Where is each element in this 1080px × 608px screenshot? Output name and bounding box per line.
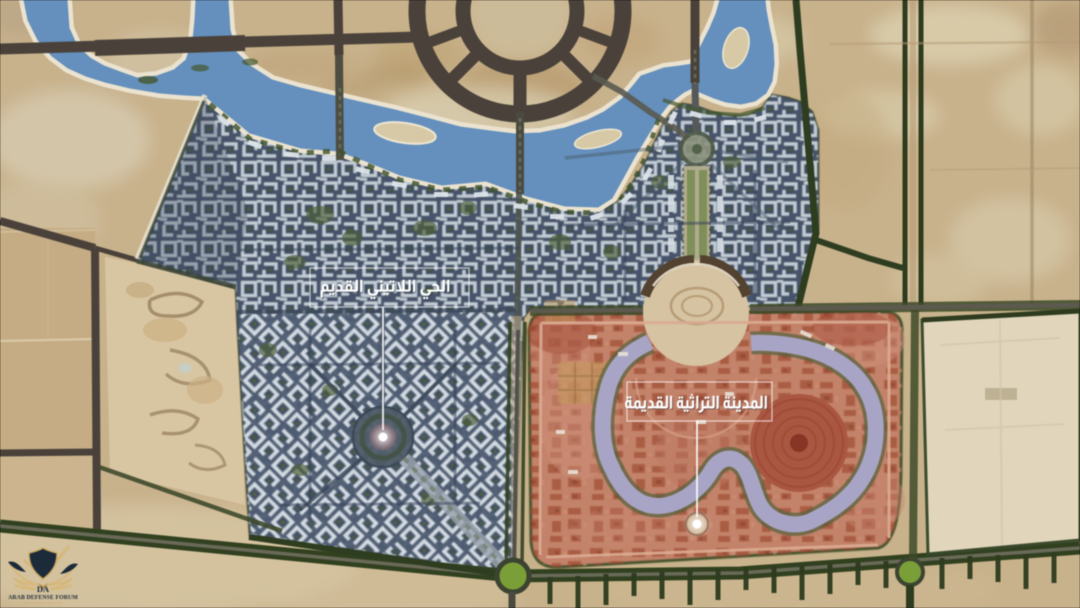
svg-text:www.defense-arab.com: www.defense-arab.com bbox=[23, 600, 63, 605]
svg-text:DA: DA bbox=[37, 584, 50, 594]
